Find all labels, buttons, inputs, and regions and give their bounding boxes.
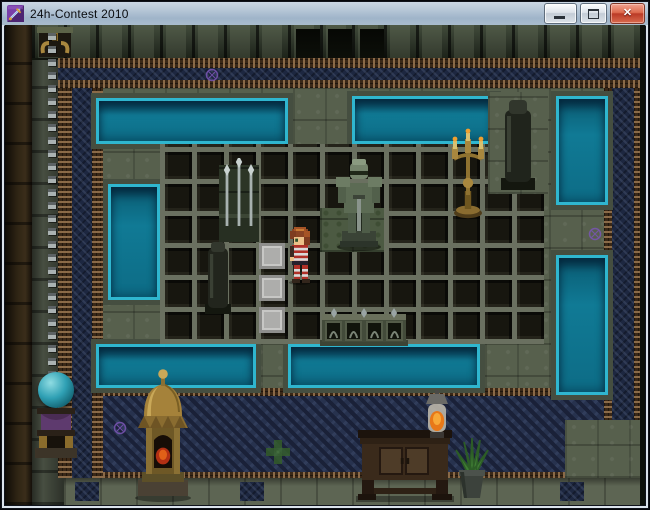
window-controls: ✕ (544, 3, 645, 22)
hanging-chain (48, 33, 56, 378)
pool-right-lower (556, 255, 608, 395)
golden-candelabra (448, 123, 488, 219)
small-obelisk (203, 240, 233, 316)
teal-orb (38, 372, 74, 408)
pool-right-upper (556, 96, 608, 205)
sword-app-icon (7, 5, 24, 22)
top-trim-inner (58, 80, 640, 88)
close-icon: ✕ (623, 7, 632, 19)
close-button[interactable]: ✕ (610, 3, 645, 24)
top-trim (58, 58, 640, 68)
spear-stand (219, 158, 259, 242)
hero-sprite (286, 227, 314, 285)
golden-lantern-shrine (130, 368, 196, 502)
maximize-icon (588, 9, 599, 19)
pool-bottom-middle (288, 344, 480, 388)
wall-mosaic-panel (560, 482, 584, 501)
game-window: 24h-Contest 2010 ✕ (0, 0, 650, 510)
doorway-alcove (296, 29, 320, 60)
purple-rune-glyph (588, 227, 602, 241)
doorway-alcove (360, 29, 384, 60)
window-title: 24h-Contest 2010 (30, 7, 129, 21)
right-mosaic-band (612, 58, 634, 478)
orb-pedestal (35, 408, 77, 458)
pool-left (108, 184, 160, 300)
pool-top-left (96, 98, 288, 144)
knight-statue (332, 155, 386, 251)
pressure-plate-tile (259, 275, 285, 301)
left-rock-wall (5, 25, 32, 505)
green-cross-mosaic (264, 438, 292, 466)
minimize-icon (554, 16, 565, 19)
stone-balustrade (320, 306, 408, 346)
game-viewport[interactable] (5, 25, 645, 505)
top-mosaic-band (58, 68, 640, 80)
stone-corner (565, 420, 640, 478)
wall-mosaic-panel (240, 482, 264, 501)
purple-rune-glyph (113, 421, 127, 435)
purple-rune-glyph (205, 68, 219, 82)
potted-plant (452, 438, 492, 502)
doorway-alcove (328, 29, 352, 60)
pressure-plate-tile (259, 243, 285, 269)
maximize-button[interactable] (580, 3, 607, 24)
minimize-button[interactable] (544, 3, 577, 24)
pressure-plate-tile (259, 307, 285, 333)
oil-lamp (422, 390, 452, 440)
right-edge-shadow (640, 25, 645, 505)
large-obelisk (497, 98, 539, 192)
wall-mosaic-panel (75, 482, 99, 501)
